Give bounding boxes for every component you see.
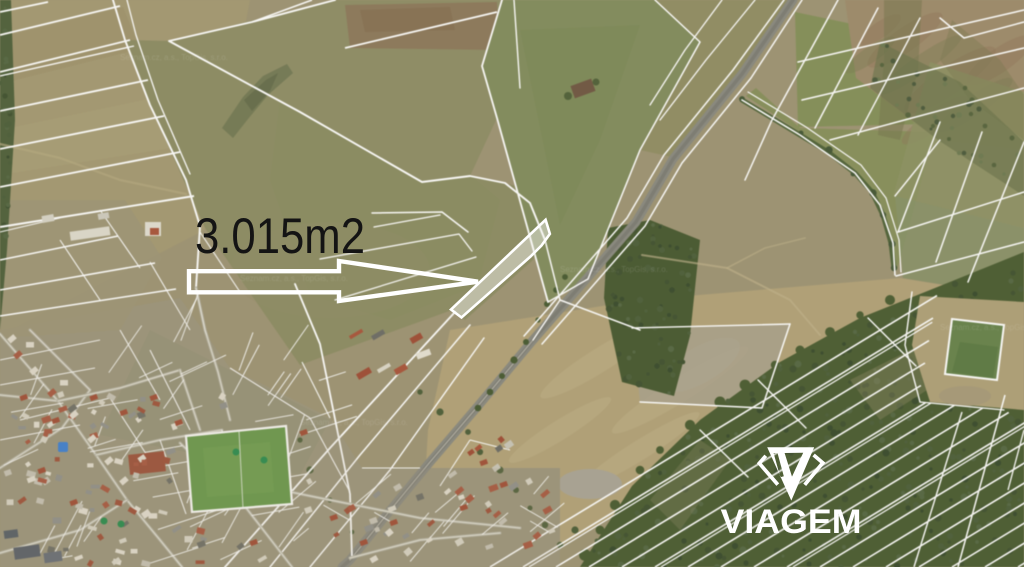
svg-text:VIAGEM: VIAGEM	[721, 503, 862, 541]
svg-text:3.015m2: 3.015m2	[195, 208, 365, 264]
